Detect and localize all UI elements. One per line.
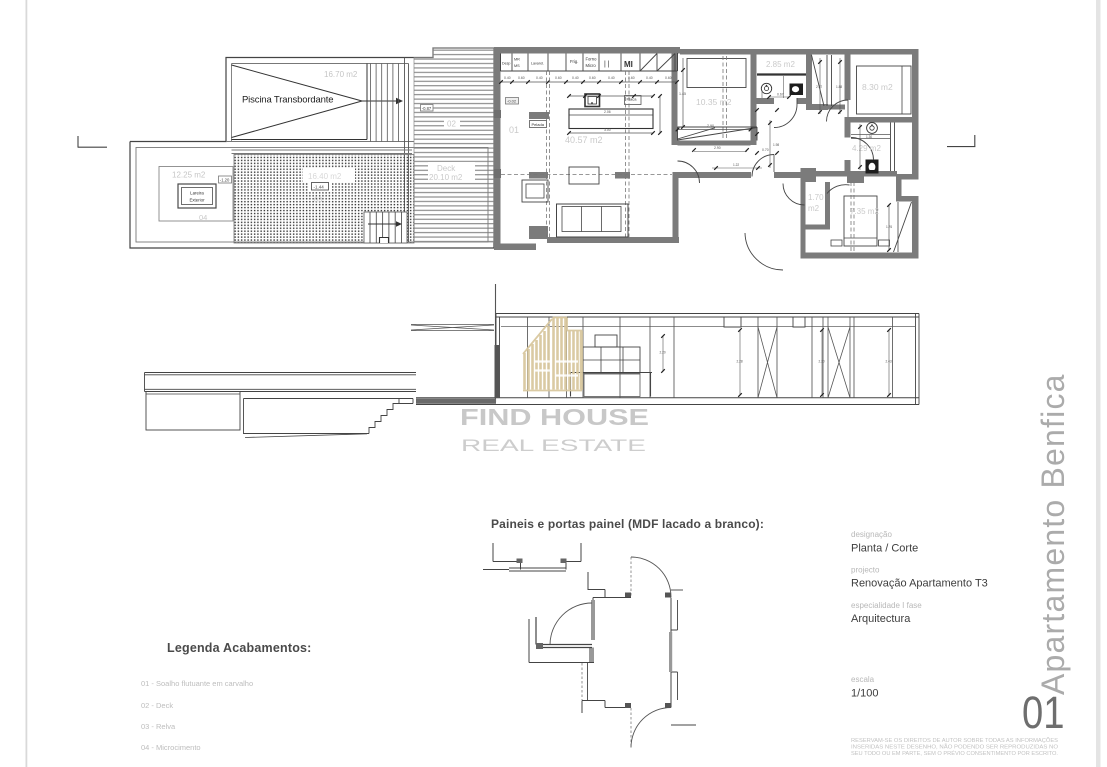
svg-text:projecto: projecto — [851, 566, 880, 575]
svg-text:0.40: 0.40 — [608, 76, 615, 80]
svg-text:02 - Deck: 02 - Deck — [141, 701, 173, 710]
svg-text:02: 02 — [447, 120, 456, 129]
svg-text:0.60: 0.60 — [665, 76, 672, 80]
svg-text:2.43: 2.43 — [886, 360, 892, 364]
svg-text:0.60: 0.60 — [589, 76, 596, 80]
svg-text:0.40: 0.40 — [646, 76, 653, 80]
svg-text:4.29 m2: 4.29 m2 — [852, 144, 881, 153]
svg-text:REAL ESTATE: REAL ESTATE — [461, 436, 646, 455]
svg-text:Lareira: Lareira — [190, 191, 204, 196]
svg-text:01: 01 — [509, 125, 519, 135]
svg-text:1.88: 1.88 — [836, 85, 842, 89]
svg-text:40.57 m2: 40.57 m2 — [565, 135, 603, 145]
svg-text:03 - Relva: 03 - Relva — [141, 722, 176, 731]
svg-text:MI: MI — [624, 60, 633, 69]
svg-text:01 - Soalho flutuante em carva: 01 - Soalho flutuante em carvalho — [141, 679, 253, 688]
svg-text:01: 01 — [1022, 687, 1065, 738]
svg-text:8.30 m2: 8.30 m2 — [862, 82, 893, 92]
svg-text:0.40: 0.40 — [536, 76, 543, 80]
svg-text:MS: MS — [514, 64, 520, 68]
svg-text:2.90: 2.90 — [707, 124, 714, 128]
svg-text:Arquitectura: Arquitectura — [851, 613, 911, 625]
svg-text:1.76: 1.76 — [886, 225, 892, 229]
svg-text:-0.87: -0.87 — [422, 106, 432, 111]
svg-text:designação: designação — [851, 530, 892, 539]
svg-text:Legenda Acabamentos:: Legenda Acabamentos: — [167, 641, 312, 655]
svg-text:Paineis e portas painel (MDF l: Paineis e portas painel (MDF lacado a br… — [491, 517, 764, 531]
svg-text:RESERVAM-SE OS DIREITOS DE AU: RESERVAM-SE OS DIREITOS DE AUTOR SOBRE T… — [851, 737, 1058, 744]
svg-text:0.40: 0.40 — [572, 76, 579, 80]
svg-text:Micro: Micro — [586, 63, 597, 68]
svg-text:04 - Microcimento: 04 - Microcimento — [141, 743, 201, 752]
svg-text:1.30: 1.30 — [866, 135, 872, 139]
svg-text:0.60: 0.60 — [555, 76, 562, 80]
svg-text:FIND HOUSE: FIND HOUSE — [460, 404, 649, 430]
svg-text:Piscina Transbordante: Piscina Transbordante — [242, 95, 333, 106]
svg-text:especialidade I fase: especialidade I fase — [851, 601, 922, 610]
svg-text:m2: m2 — [808, 204, 820, 213]
svg-text:SEU TODO OU EM PARTE, SEM O: SEU TODO OU EM PARTE, SEM O PRÉVIO CONSE… — [851, 750, 1058, 757]
svg-text:16.40 m2: 16.40 m2 — [308, 172, 342, 181]
svg-text:Deck: Deck — [437, 164, 456, 173]
svg-text:20.10 m2: 20.10 m2 — [429, 173, 463, 182]
svg-text:16.70 m2: 16.70 m2 — [324, 70, 358, 79]
svg-text:Apartamento Benfica: Apartamento Benfica — [1035, 373, 1071, 695]
svg-text:04: 04 — [199, 213, 207, 222]
svg-text:2.37: 2.37 — [816, 85, 822, 89]
svg-text:Desp: Desp — [502, 62, 510, 66]
svg-text:1.70: 1.70 — [808, 193, 824, 202]
svg-text:3.00: 3.00 — [604, 128, 611, 132]
svg-text:Forno: Forno — [586, 57, 598, 62]
svg-text:-1.20: -1.20 — [220, 178, 230, 183]
svg-text:1.22: 1.22 — [733, 163, 739, 167]
svg-text:2.20: 2.20 — [660, 351, 666, 355]
svg-text:| |: | | — [604, 61, 610, 68]
svg-text:0.67: 0.67 — [777, 93, 784, 97]
svg-text:MR: MR — [514, 58, 520, 62]
svg-text:03: 03 — [314, 195, 322, 204]
svg-text:2.28: 2.28 — [737, 360, 743, 364]
svg-text:Frig.: Frig. — [570, 59, 578, 64]
svg-text:2.85 m2: 2.85 m2 — [766, 60, 795, 69]
svg-text:7.35 m2: 7.35 m2 — [850, 207, 879, 216]
svg-text:0.60: 0.60 — [518, 76, 525, 80]
svg-text:-1.44: -1.44 — [314, 185, 325, 190]
svg-text:INSERIDAS NESTE DESENHO, NÃ: INSERIDAS NESTE DESENHO, NÃO PODENDO SER… — [851, 744, 1058, 751]
svg-text:Lavand.: Lavand. — [531, 62, 544, 66]
svg-text:1.45: 1.45 — [679, 92, 686, 96]
svg-text:12.25 m2: 12.25 m2 — [172, 171, 206, 180]
svg-text:Placa: Placa — [627, 97, 638, 102]
svg-text:Planta / Corte: Planta / Corte — [851, 543, 918, 555]
svg-text:2.06: 2.06 — [604, 110, 611, 114]
svg-text:Renovação Apartamento T3: Renovação Apartamento T3 — [851, 578, 988, 590]
svg-text:2.90: 2.90 — [714, 146, 721, 150]
svg-text:Exterior: Exterior — [189, 198, 205, 203]
svg-text:1.98: 1.98 — [773, 143, 779, 147]
svg-text:Pelada: Pelada — [532, 122, 545, 127]
svg-text:1/100: 1/100 — [851, 688, 879, 700]
svg-text:-0.02: -0.02 — [507, 99, 517, 104]
svg-text:escala: escala — [851, 675, 875, 684]
svg-text:2.20: 2.20 — [819, 360, 825, 364]
svg-text:0.70: 0.70 — [762, 148, 769, 152]
svg-text:0.40: 0.40 — [504, 76, 511, 80]
